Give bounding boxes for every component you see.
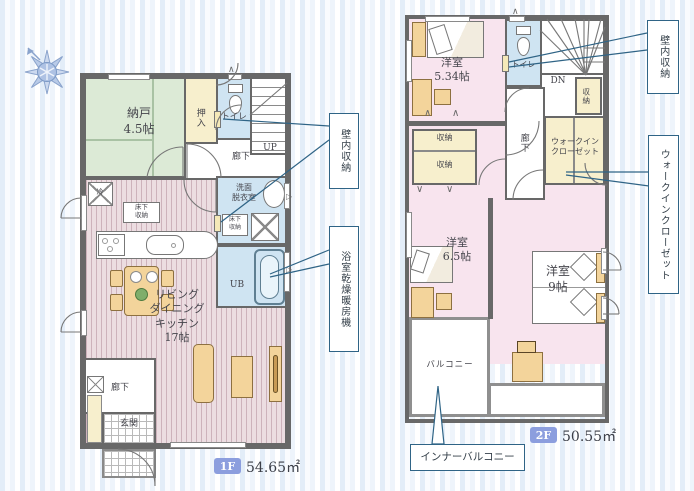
wall-niche-washroom xyxy=(214,215,221,232)
vent-icon: ▷ xyxy=(286,193,292,201)
fold-door-icon: ∧ xyxy=(452,109,459,119)
window xyxy=(406,212,412,258)
up-label: UP xyxy=(258,143,282,155)
hall-upper-label: 廊下 xyxy=(224,152,258,164)
fold-door-icon: ∧ xyxy=(424,109,431,119)
callout-inner-balcony: インナーバルコニー xyxy=(410,444,525,471)
plate-icon xyxy=(146,271,158,283)
nando-label: 納戸 4.5帖 xyxy=(104,106,174,137)
closet-a-label: 収納 xyxy=(412,133,477,143)
wash-basin-icon xyxy=(263,180,285,208)
bedroom-534-label: 洋室 5.34帖 xyxy=(413,56,491,85)
vent-icon: ▷ xyxy=(286,266,292,274)
fridge-label: 冷 xyxy=(92,188,108,197)
window xyxy=(108,74,150,80)
window xyxy=(81,310,87,336)
tv-board xyxy=(269,346,282,402)
hall-2f-label: 廊下 xyxy=(517,124,529,162)
side-table xyxy=(434,89,451,105)
hall-lower-label: 廊下 xyxy=(104,383,136,395)
plate-icon xyxy=(130,271,142,283)
porch xyxy=(102,449,156,478)
underfloor-kitchen-label: 床下 収納 xyxy=(124,203,159,220)
burner-icon xyxy=(102,238,108,244)
stair-closet-label: 収納 xyxy=(581,80,591,112)
bedroom-65-label: 洋室 6.5帖 xyxy=(426,236,488,265)
tv-icon xyxy=(273,355,278,393)
washer-space-icon xyxy=(251,213,279,241)
genkan-label: 玄関 xyxy=(112,419,146,431)
floor2-area: 50.55㎡ xyxy=(562,426,616,446)
bathtub-icon xyxy=(254,249,285,305)
oshiire-label: 押入 xyxy=(193,94,205,142)
underfloor-wash-label: 床下 収納 xyxy=(223,216,247,232)
closet-b-label: 収納 xyxy=(412,160,477,170)
desk xyxy=(411,287,434,318)
callout-wic: ウォークインクローゼット xyxy=(648,135,679,294)
stove-icon xyxy=(98,234,125,256)
floorplan-canvas: ▷ ▷ ∧ 納戸 4.5帖 押入 トイレ UP 廊下 洗面 脱衣室 床下 収納 … xyxy=(0,0,694,491)
sofa xyxy=(193,344,214,403)
callout-bath-dryer: 浴室乾燥暖房機 xyxy=(329,226,359,352)
chair xyxy=(110,294,123,311)
shoe-cabinet xyxy=(87,395,102,443)
floor1-area: 54.65㎡ xyxy=(246,457,300,477)
bed-cabinet xyxy=(412,22,426,57)
window xyxy=(170,442,246,448)
floor2-badge: 2F xyxy=(530,427,557,443)
fold-door-icon: ∨ xyxy=(416,185,423,195)
burner-icon xyxy=(113,238,119,244)
chair xyxy=(161,270,174,287)
compass-icon xyxy=(16,42,78,106)
faucet-icon xyxy=(171,243,176,248)
callout-wall-storage-2f: 壁内収納 xyxy=(647,20,679,94)
callout-wall-storage-1f: 壁内収納 xyxy=(329,113,359,189)
toilet-tank-icon xyxy=(228,84,243,93)
window xyxy=(601,296,607,320)
desk xyxy=(512,352,543,382)
tub-inner xyxy=(260,255,279,299)
balcony-label: バルコニー xyxy=(421,360,479,371)
window xyxy=(425,16,470,22)
burner-icon xyxy=(107,246,113,252)
vent-icon: ∧ xyxy=(228,66,235,75)
window xyxy=(601,248,607,274)
ldk-label: リビング ダイニング キッチン 17帖 xyxy=(143,288,211,345)
bedroom-9-label: 洋室 9帖 xyxy=(534,264,582,295)
low-table xyxy=(231,356,253,398)
vent-icon: ∧ xyxy=(512,8,519,17)
window xyxy=(406,40,412,82)
ub-label: UB xyxy=(224,280,250,292)
side-table xyxy=(436,293,452,310)
washroom-label: 洗面 脱衣室 xyxy=(224,183,264,204)
floor1-badge: 1F xyxy=(214,458,241,474)
toilet-tank-icon xyxy=(516,26,531,35)
toilet-2f-label: トイレ xyxy=(506,60,541,70)
window xyxy=(81,195,87,231)
chair xyxy=(517,341,536,353)
fold-door-icon: ∨ xyxy=(446,185,453,195)
chair xyxy=(110,270,123,287)
dn-label: DN xyxy=(546,76,570,88)
wic-label: ウォークイン クローゼット xyxy=(545,137,605,158)
kitchen-sink xyxy=(146,235,184,255)
toilet-1f-label: トイレ xyxy=(217,112,251,123)
shoe-xbox-icon xyxy=(87,376,104,393)
